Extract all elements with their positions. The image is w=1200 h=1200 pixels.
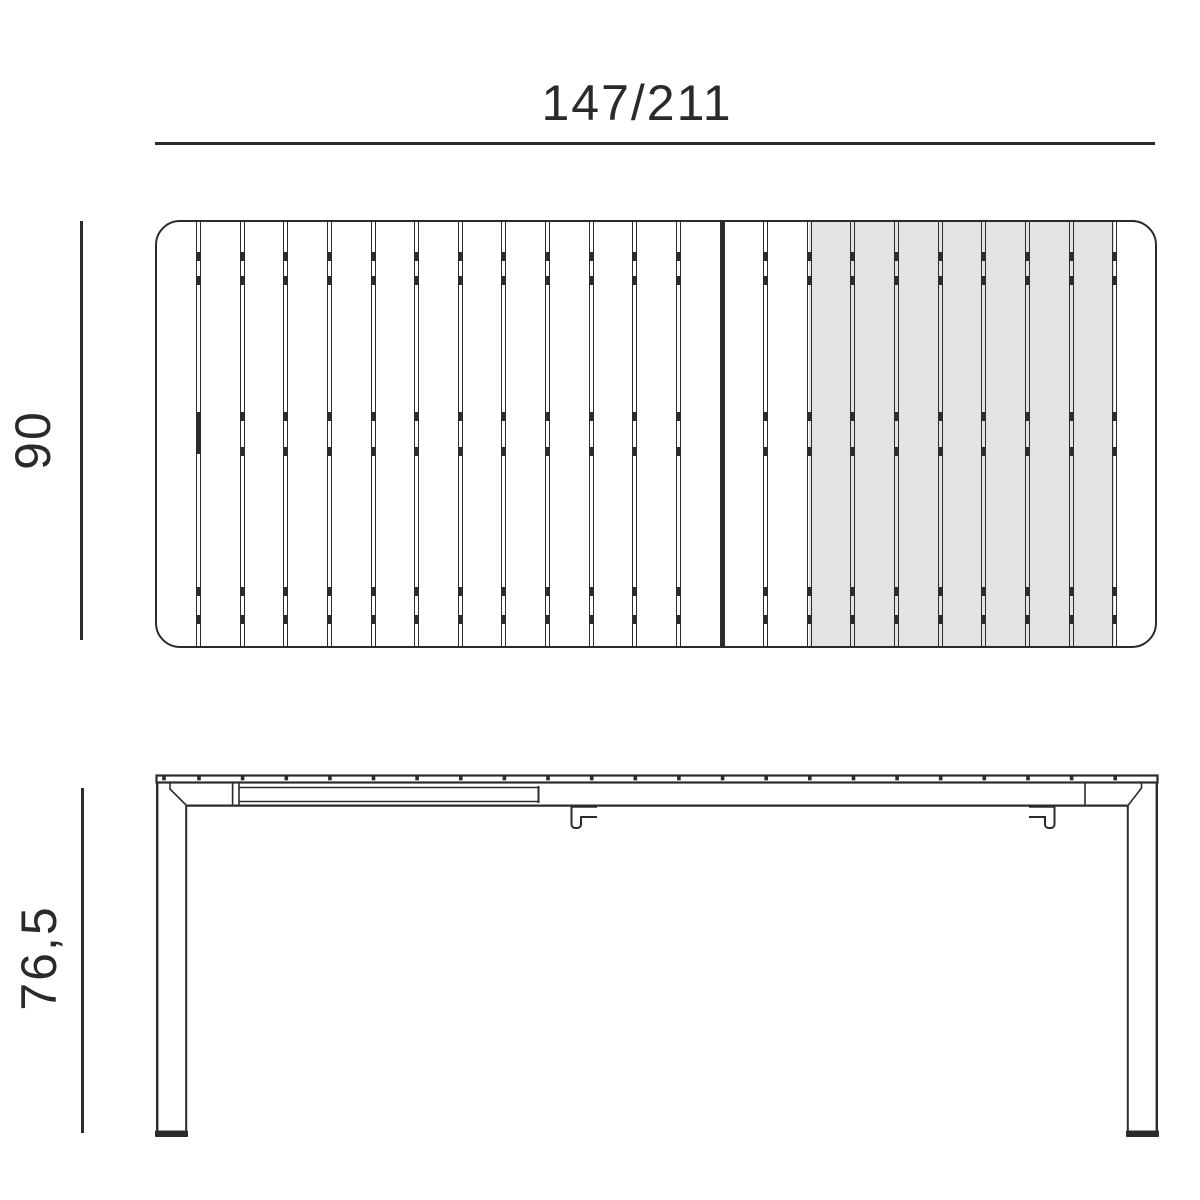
tabletop-edge bbox=[157, 776, 1158, 783]
left-leg-foot bbox=[155, 1131, 188, 1138]
slat-edge-tick bbox=[634, 776, 638, 781]
dimension-drawing: 147/211 90 76,5 bbox=[0, 0, 1200, 1200]
slat-edge-tick bbox=[852, 776, 856, 781]
corner-bracket-left bbox=[170, 783, 187, 806]
slat-edge-tick bbox=[546, 776, 550, 781]
slat-edge-tick bbox=[895, 776, 899, 781]
slat-edge-tick bbox=[197, 776, 201, 781]
slat-edge-tick bbox=[162, 776, 166, 781]
latch-hook-right bbox=[1029, 807, 1055, 828]
right-leg-foot bbox=[1126, 1131, 1159, 1138]
slat-edge-tick bbox=[459, 776, 463, 781]
slat-edge-tick bbox=[285, 776, 289, 781]
slat-edge-tick bbox=[808, 776, 812, 781]
extension-beam bbox=[239, 786, 539, 803]
slat-edge-tick bbox=[764, 776, 768, 781]
left-leg bbox=[155, 783, 188, 1137]
latch-hook-left bbox=[572, 807, 598, 828]
slat-edge-tick bbox=[721, 776, 725, 781]
support-rail bbox=[186, 783, 1128, 806]
slat-edge-tick bbox=[590, 776, 594, 781]
slat-edge-tick bbox=[241, 776, 245, 781]
slat-edge-tick bbox=[939, 776, 943, 781]
slat-edge-tick bbox=[677, 776, 681, 781]
slat-edge-tick bbox=[415, 776, 419, 781]
slat-edge-tick bbox=[1026, 776, 1030, 781]
slat-edge-tick bbox=[1113, 776, 1117, 781]
right-leg bbox=[1126, 783, 1159, 1137]
slat-edge-tick bbox=[372, 776, 376, 781]
slat-edge-tick bbox=[503, 776, 507, 781]
corner-bracket-right bbox=[1128, 783, 1142, 806]
table-side-view bbox=[0, 0, 1200, 1200]
slat-edge-tick bbox=[1070, 776, 1074, 781]
slat-edge-tick bbox=[983, 776, 987, 781]
slat-edge-tick bbox=[328, 776, 332, 781]
